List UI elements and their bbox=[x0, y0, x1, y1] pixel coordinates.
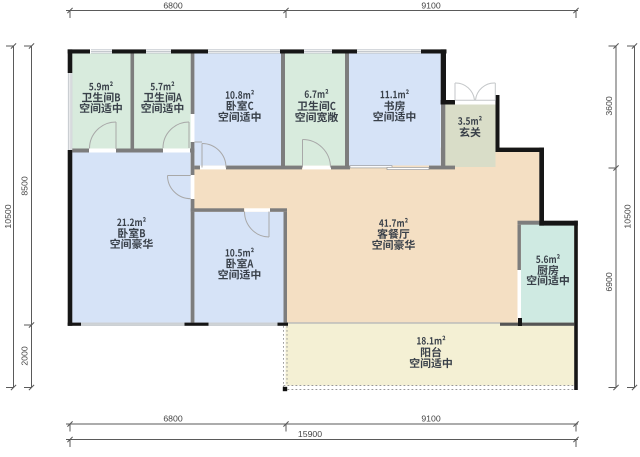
svg-text:6800: 6800 bbox=[163, 0, 182, 10]
svg-text:2000: 2000 bbox=[20, 346, 30, 365]
svg-text:15900: 15900 bbox=[298, 429, 322, 439]
svg-text:3600: 3600 bbox=[604, 96, 614, 115]
svg-text:6900: 6900 bbox=[604, 272, 614, 291]
svg-text:8500: 8500 bbox=[20, 176, 30, 195]
svg-text:10500: 10500 bbox=[3, 204, 13, 228]
svg-text:6800: 6800 bbox=[163, 414, 182, 424]
svg-text:9100: 9100 bbox=[421, 414, 440, 424]
svg-text:9100: 9100 bbox=[421, 0, 440, 10]
svg-text:10500: 10500 bbox=[623, 204, 633, 228]
